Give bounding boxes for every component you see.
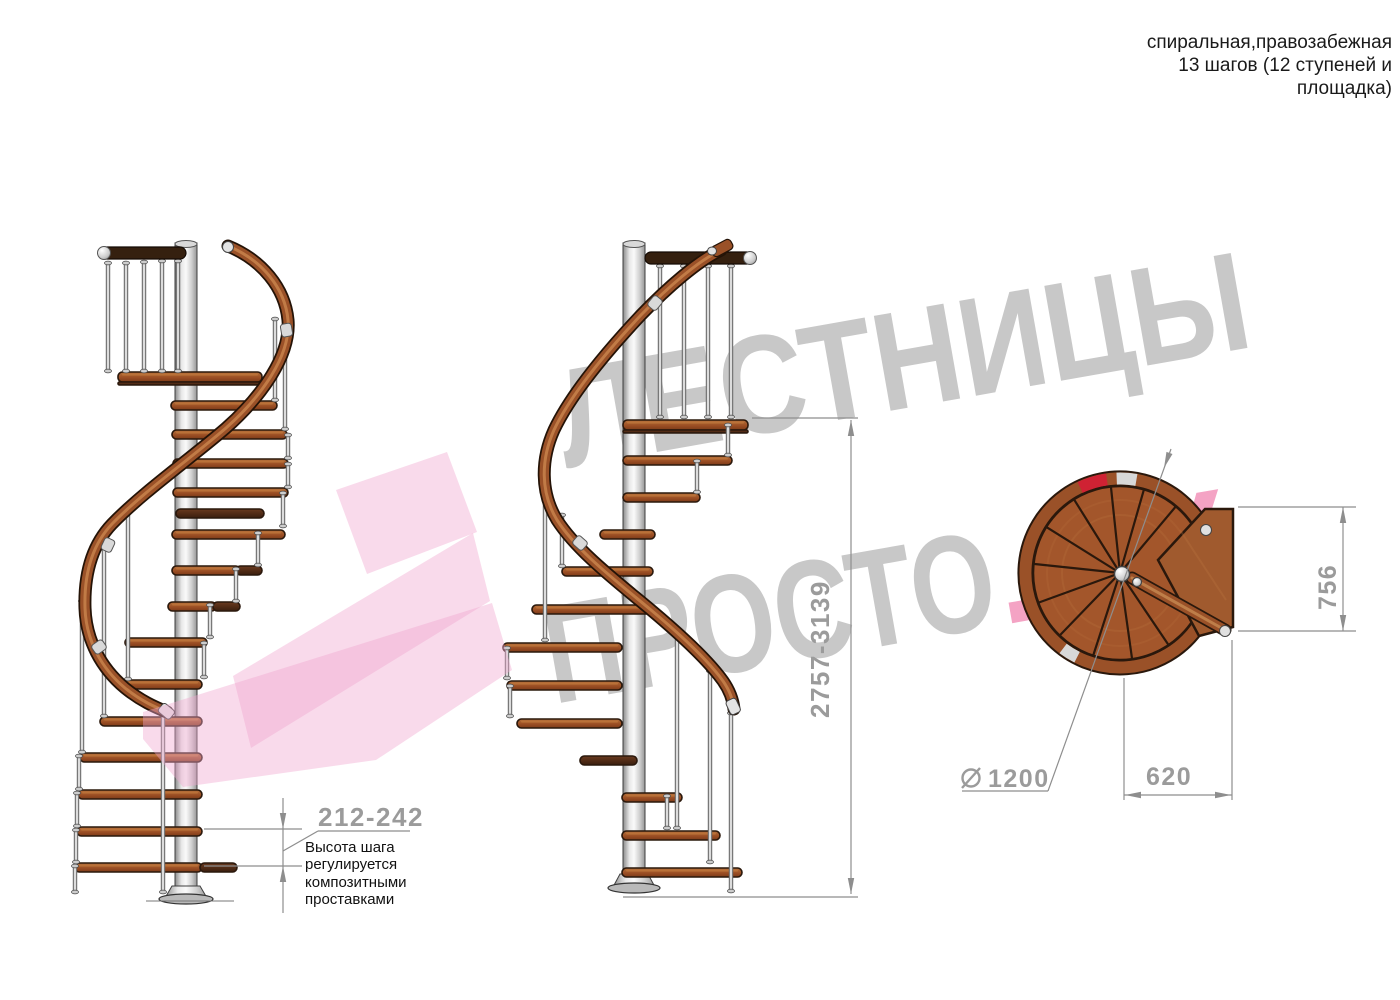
step: [200, 863, 237, 872]
baluster-collar: [558, 564, 565, 568]
dim-platform-depth: 756: [1314, 564, 1342, 610]
baluster-collar: [663, 794, 670, 798]
baluster-collar: [206, 603, 213, 607]
dim-platform-width: 620: [1146, 763, 1192, 791]
step-highlight: [176, 532, 281, 534]
baluster-collar: [200, 675, 207, 679]
baluster-collar: [706, 860, 713, 864]
baluster-collar: [284, 485, 291, 489]
note-line-3: композитными: [305, 874, 407, 891]
baluster-collar: [284, 456, 291, 460]
step-height-note: Высота шага регулируется композитными пр…: [305, 839, 407, 909]
baluster-collar: [71, 864, 78, 868]
dim-total-height: 2757-3139: [805, 580, 835, 718]
baluster-collar: [232, 567, 239, 571]
rail-end-cap: [1220, 626, 1231, 637]
step: [580, 756, 637, 765]
baluster-collar: [232, 599, 239, 603]
baluster-collar: [140, 369, 147, 373]
step: [125, 638, 207, 647]
handrail-top-cap: [223, 242, 234, 253]
step: [622, 793, 682, 802]
title-line-2: 13 шагов (12 ступеней и: [1147, 54, 1392, 77]
step: [517, 719, 622, 728]
baluster-collar: [279, 524, 286, 528]
step-highlight: [604, 532, 651, 534]
step-highlight: [626, 870, 738, 872]
dim-step-height: 212-242: [318, 802, 424, 832]
baluster-collar: [73, 824, 80, 828]
title-line-3: площадка): [1147, 77, 1392, 100]
step-highlight: [626, 833, 716, 835]
baluster-collar: [673, 826, 680, 830]
dimension-arrow: [1340, 615, 1346, 631]
step-highlight: [79, 865, 198, 867]
title-line-1: спиральная,правозабежная: [1147, 31, 1392, 54]
baluster-collar: [254, 563, 261, 567]
baluster-collar: [656, 415, 663, 419]
technical-drawing-page: ЛЕСТНИЦЫ ПРОСТО.РУ: [0, 0, 1400, 1000]
hub-knob: [1133, 578, 1142, 587]
step: [622, 868, 742, 877]
baluster-collar: [727, 415, 734, 419]
baluster-collar: [541, 638, 548, 642]
step-highlight: [172, 604, 212, 606]
baluster-collar: [73, 791, 80, 795]
step: [78, 790, 202, 799]
platform-handrail-bar: [98, 247, 186, 259]
baluster-collar: [680, 415, 687, 419]
step-highlight: [521, 721, 618, 723]
pole-base-plate: [608, 883, 660, 893]
baluster-collar: [71, 890, 78, 894]
step: [213, 602, 240, 611]
baluster-collar: [506, 714, 513, 718]
baluster-collar: [271, 398, 278, 402]
handrail-ball-end: [98, 247, 111, 260]
baluster-collar: [206, 635, 213, 639]
baluster-collar: [159, 890, 166, 894]
baluster-collar: [174, 259, 181, 263]
pole-base-plate: [159, 894, 213, 904]
hub-ball: [1115, 567, 1130, 582]
title-block: спиральная,правозабежная 13 шагов (12 ст…: [1147, 31, 1392, 100]
step-highlight: [81, 829, 198, 831]
step-highlight: [82, 792, 198, 794]
note-line-1: Высота шага: [305, 839, 407, 856]
step: [623, 456, 732, 465]
platform-edge: [118, 382, 262, 385]
dimension-arrow: [848, 878, 854, 894]
baluster-collar: [78, 750, 85, 754]
baluster-collar: [284, 462, 291, 466]
step-highlight: [627, 495, 696, 497]
baluster-collar: [174, 369, 181, 373]
step: [172, 566, 240, 575]
step: [600, 530, 655, 539]
baluster-collar: [122, 369, 129, 373]
step: [77, 827, 202, 836]
ring-joint: [1117, 479, 1137, 480]
dimension-arrow: [280, 813, 286, 829]
diameter-symbol: [962, 768, 980, 788]
step-highlight: [127, 682, 198, 684]
step-highlight: [536, 607, 649, 609]
baluster-collar: [122, 261, 129, 265]
dim-diameter: 1200: [988, 765, 1050, 793]
step-highlight: [511, 683, 618, 685]
baluster-collar: [271, 317, 278, 321]
baluster-collar: [724, 453, 731, 457]
baluster-collar: [704, 415, 711, 419]
step-highlight: [122, 374, 258, 376]
dimension-arrow: [280, 866, 286, 882]
baluster-collar: [254, 531, 261, 535]
step: [176, 509, 264, 518]
step: [172, 530, 285, 539]
step: [503, 643, 622, 652]
baluster-collar: [158, 369, 165, 373]
step: [236, 566, 262, 575]
pink-logo-arrow: [143, 452, 512, 787]
baluster-collar: [656, 264, 663, 268]
step-highlight: [176, 568, 236, 570]
step-highlight: [507, 645, 618, 647]
baluster-collar: [724, 423, 731, 427]
step-highlight: [177, 490, 284, 492]
step-highlight: [627, 458, 728, 460]
left-staircase-side-view: [71, 241, 293, 905]
platform: [118, 372, 262, 382]
dimension-arrow: [1215, 792, 1231, 798]
baluster-collar: [158, 259, 165, 263]
baluster-collar: [693, 490, 700, 494]
baluster-collar: [281, 427, 288, 431]
dimension-arrow: [1125, 792, 1141, 798]
baluster-collar: [279, 491, 286, 495]
step: [173, 488, 288, 497]
pole-top-cap: [623, 241, 645, 248]
step: [532, 605, 653, 614]
baluster-collar: [693, 459, 700, 463]
baluster-collar: [727, 889, 734, 893]
baluster-collar: [140, 260, 147, 264]
baluster-collar: [104, 261, 111, 265]
baluster-collar: [72, 860, 79, 864]
ring-end-cap: [1201, 525, 1212, 536]
handrail-joint: [280, 323, 293, 338]
baluster-collar: [75, 787, 82, 791]
baluster-collar: [200, 641, 207, 645]
baluster-collar: [284, 433, 291, 437]
dimension-arrow: [1340, 507, 1346, 523]
baluster-collar: [503, 676, 510, 680]
baluster-collar: [104, 369, 111, 373]
ring-joint: [1063, 649, 1077, 658]
baluster-collar: [100, 714, 107, 718]
note-line-2: регулируется: [305, 856, 407, 873]
step: [507, 681, 622, 690]
handrail-ball-end: [744, 252, 757, 265]
handrail-top-cap: [708, 247, 717, 255]
baluster-collar: [75, 754, 82, 758]
baluster-collar: [663, 826, 670, 830]
step: [75, 863, 202, 872]
drawing-canvas: ЛЕСТНИЦЫ ПРОСТО.РУ: [0, 0, 1400, 1000]
note-line-4: проставками: [305, 891, 407, 908]
baluster-collar: [727, 264, 734, 268]
step: [622, 831, 720, 840]
step-highlight: [129, 640, 203, 642]
baluster-collar: [506, 684, 513, 688]
step: [623, 493, 700, 502]
baluster-collar: [72, 828, 79, 832]
step: [171, 401, 277, 410]
